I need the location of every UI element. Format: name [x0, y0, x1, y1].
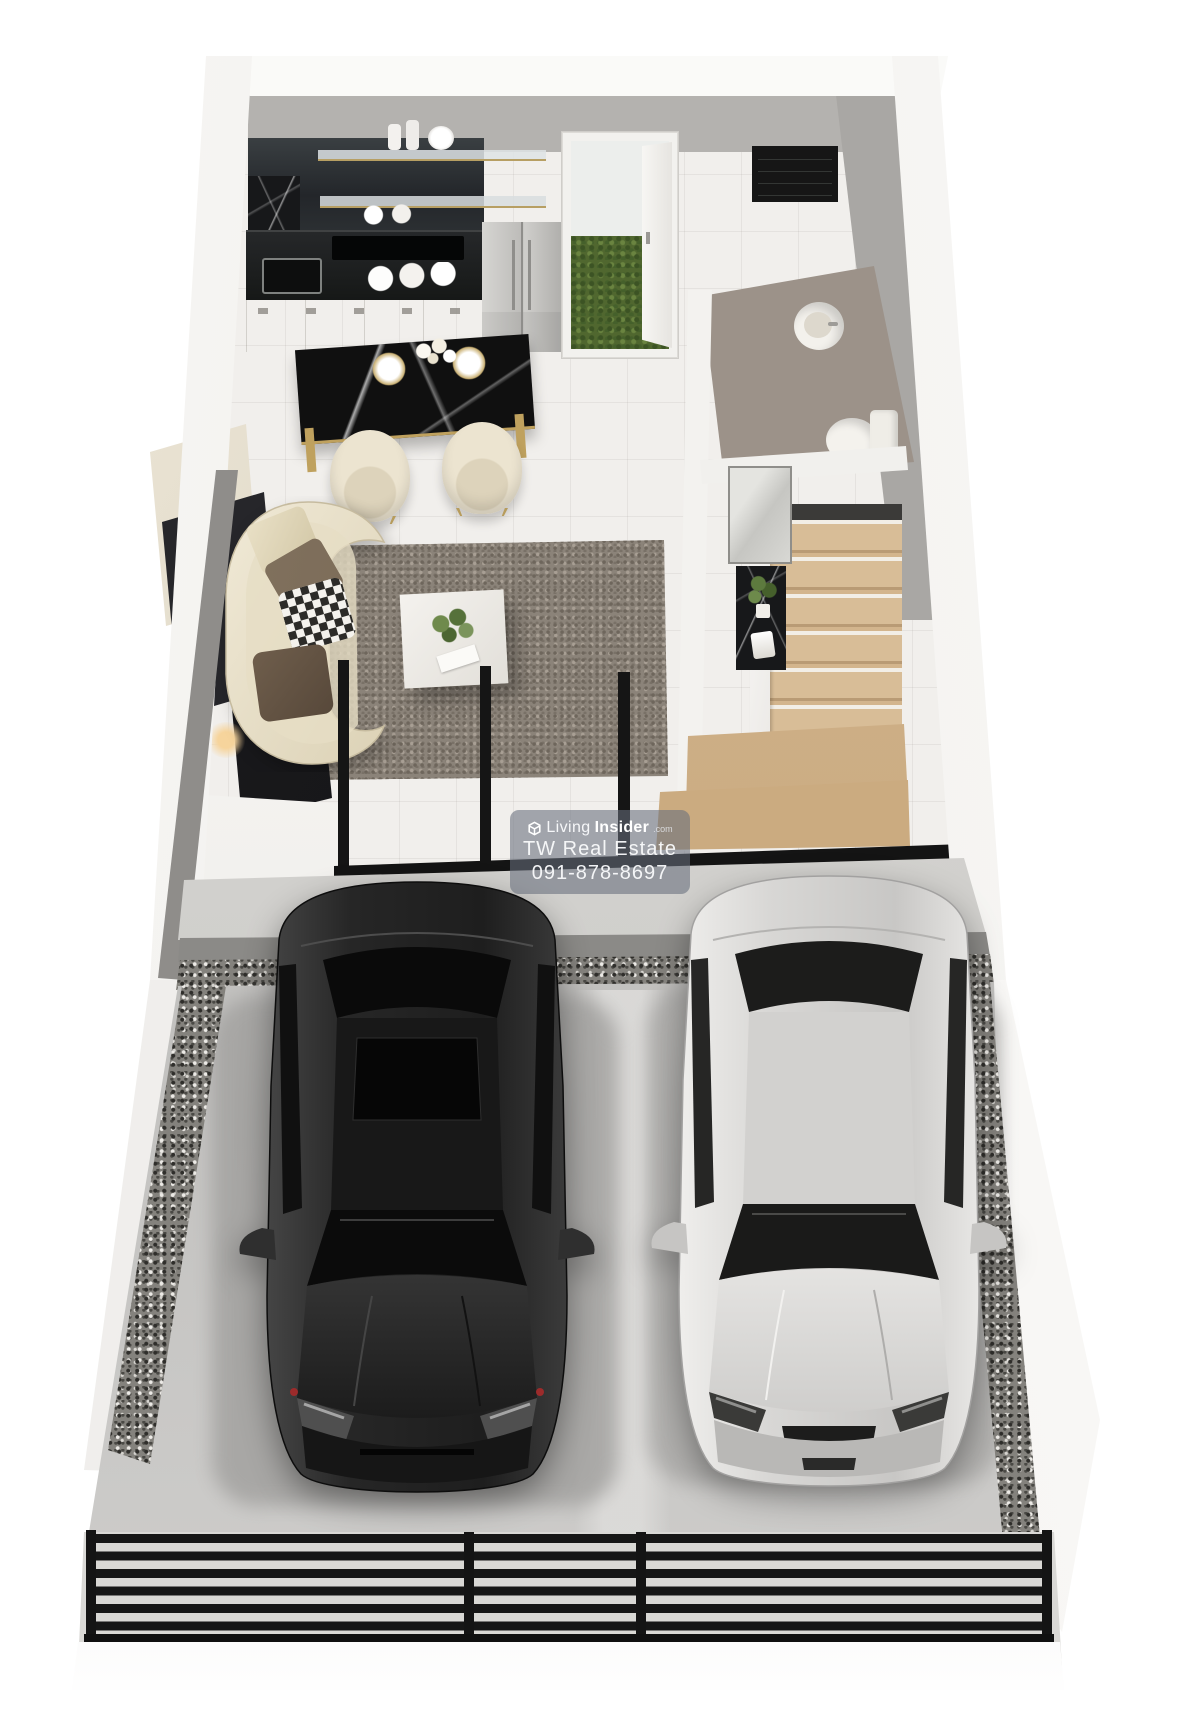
watermark-brand-row: LivingInsider.com [527, 819, 672, 837]
black-car [230, 876, 604, 1516]
bottle [406, 120, 419, 150]
side-mirror [651, 1222, 688, 1254]
fridge-handle [512, 240, 515, 310]
phone-number: 091-878-8697 [532, 862, 669, 885]
shelf-plates [356, 204, 426, 226]
livinginsider-cube-icon [527, 821, 542, 836]
console-ornament [750, 631, 775, 660]
console-plant-pot [756, 604, 770, 618]
marker-light [290, 1388, 298, 1396]
marker-light [536, 1388, 544, 1396]
window-mullion [338, 660, 349, 874]
refrigerator [482, 222, 564, 352]
shelf-dishware [388, 118, 472, 150]
transom-window [752, 146, 838, 202]
sink-faucet [828, 322, 838, 326]
brand-bold: Insider [595, 819, 650, 837]
counter-dishes [364, 262, 456, 292]
hall-mirror [728, 466, 792, 564]
bathroom-sink [794, 302, 844, 350]
hood [297, 1275, 537, 1418]
kitchen-sink [262, 258, 322, 294]
hood [709, 1269, 949, 1412]
table-flowers [408, 334, 460, 368]
door-handle [646, 232, 650, 244]
fence-post [1042, 1530, 1052, 1642]
fence-post [464, 1532, 474, 1640]
cooktop [332, 236, 464, 260]
front-gate-fence [86, 1534, 1052, 1638]
license-plate [802, 1458, 856, 1470]
kitchen-shelf-lower [320, 196, 546, 208]
sunroof [353, 1038, 481, 1120]
dining-chair [442, 422, 522, 514]
car-roof [743, 1012, 915, 1204]
brand-light: Living [546, 819, 590, 837]
seat-cushion-brown [251, 643, 334, 723]
side-mirror [558, 1228, 595, 1260]
fridge-handle [528, 240, 531, 310]
floorplan-scene: LivingInsider.com TW Real Estate 091-878… [0, 0, 1200, 1714]
silver-car [642, 870, 1016, 1510]
window-mullion [480, 666, 491, 878]
cabinet-handles [258, 308, 478, 314]
door-leaf [642, 142, 672, 348]
plate-stack [428, 126, 454, 150]
fridge-seam [521, 222, 523, 352]
side-mirror [970, 1222, 1007, 1254]
fence-post [636, 1532, 646, 1640]
side-mirror [239, 1228, 276, 1260]
kitchen-shelf-upper [318, 150, 546, 161]
fence-post [86, 1530, 96, 1642]
table-place-setting [372, 352, 406, 386]
brand-suffix: .com [653, 824, 673, 834]
watermark-panel: LivingInsider.com TW Real Estate 091-878… [510, 810, 690, 894]
window-glass [758, 152, 832, 196]
coffee-table-plant [424, 604, 480, 648]
agency-name: TW Real Estate [523, 838, 677, 861]
fence-bottom-rail [84, 1634, 1054, 1642]
bottle [388, 124, 401, 150]
back-door-frame [562, 132, 678, 358]
